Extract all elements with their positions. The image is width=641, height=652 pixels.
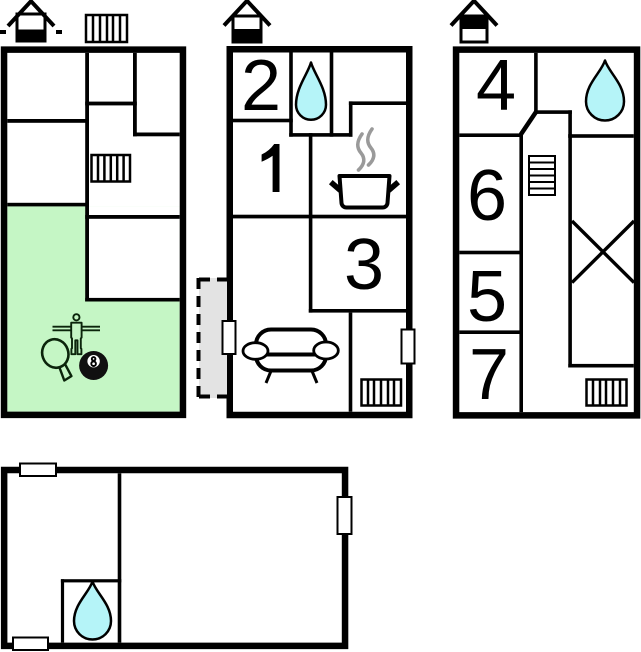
svg-text:5: 5 [467,257,507,337]
svg-text:3: 3 [344,225,384,305]
svg-text:7: 7 [469,335,509,415]
svg-text:2: 2 [241,46,281,126]
svg-text:4: 4 [476,46,516,126]
svg-text:6: 6 [467,156,507,236]
